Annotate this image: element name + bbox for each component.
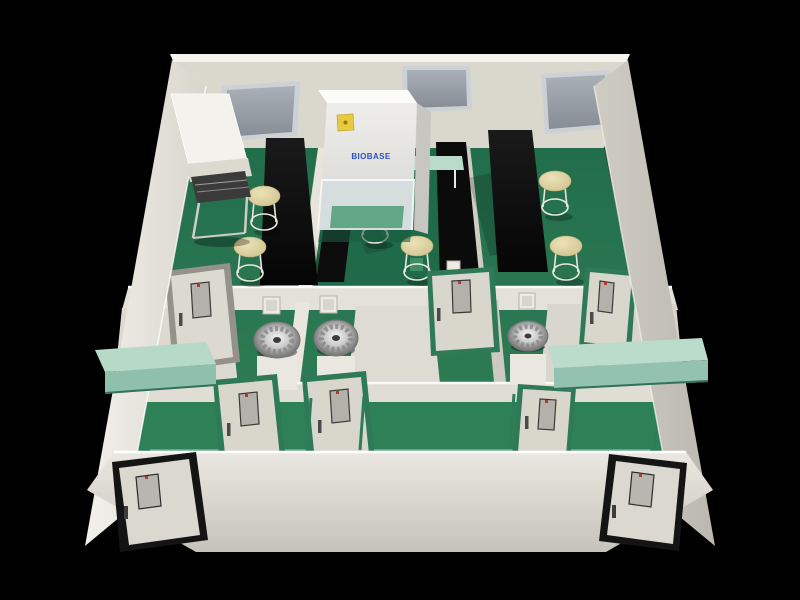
pass-box: [519, 293, 535, 309]
door-black-frame-entry: [112, 452, 208, 552]
door-handle: [437, 308, 441, 321]
door-handle: [612, 505, 616, 518]
cabinet-top: [318, 90, 417, 103]
door-green-frame: [427, 267, 500, 356]
pass-box-door: [323, 299, 334, 310]
lab-scene-canvas: BIOBASE: [0, 0, 800, 600]
stool-seat: [550, 236, 582, 256]
cabinet-front: [322, 103, 417, 179]
door-vision-panel: [452, 280, 471, 313]
door-handle: [179, 313, 183, 326]
lab-3d-render: BIOBASE: [0, 0, 800, 600]
stool-seat: [539, 171, 571, 191]
pass-box-door: [266, 300, 277, 311]
fan-hub: [332, 335, 340, 341]
fan-hub: [273, 337, 281, 343]
cabinet-floor-shadow: [318, 230, 412, 242]
door-vision-panel: [330, 389, 350, 423]
door-red-dot: [458, 281, 461, 284]
door-red-dot: [336, 391, 339, 394]
door-red-dot: [545, 400, 548, 403]
door-red-dot: [604, 282, 607, 285]
cabinet-work-area: [330, 206, 404, 228]
fan-hub: [525, 334, 532, 339]
door-vision-panel: [629, 472, 654, 507]
back-wall-top-edge: [170, 54, 630, 63]
door-green-frame: [512, 384, 576, 462]
door-vision-panel: [191, 282, 211, 318]
door-black-frame-entry: [599, 454, 687, 551]
pass-box: [320, 296, 337, 313]
door-vision-panel: [136, 474, 161, 509]
door-handle: [227, 423, 231, 436]
biohazard-icon: [344, 121, 348, 125]
counter-mint-right: [548, 338, 708, 390]
door-handle: [525, 416, 529, 429]
door-red-dot: [639, 474, 642, 477]
pass-box-door: [522, 296, 532, 306]
door-vision-panel: [239, 392, 259, 426]
door-green-frame: [579, 267, 637, 352]
counter-mint-left: [95, 342, 216, 394]
fan-pedestal: [510, 354, 546, 384]
cabinet-side: [414, 103, 431, 234]
door-vision-panel: [538, 399, 556, 430]
workstation-shadow: [194, 237, 250, 247]
door-vision-panel: [598, 281, 614, 313]
door-handle: [318, 420, 322, 433]
door-handle: [590, 312, 594, 324]
pass-box: [263, 297, 280, 314]
door-red-dot: [197, 284, 200, 287]
door-red-dot: [245, 394, 248, 397]
door-red-dot: [145, 476, 148, 479]
cabinet-brand-label: BIOBASE: [351, 152, 391, 161]
stool-seat: [248, 186, 280, 206]
door-handle: [124, 506, 128, 519]
